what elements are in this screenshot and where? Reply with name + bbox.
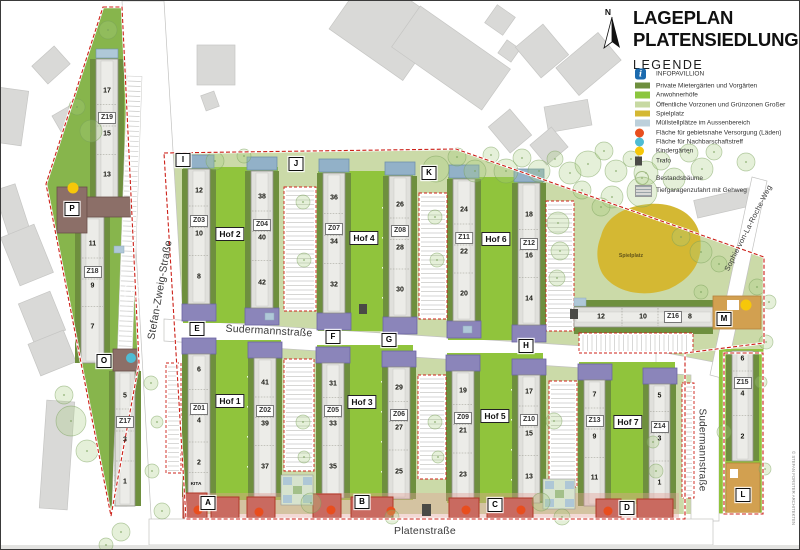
- legend-item-label: Anwohnerhöfe: [656, 92, 698, 99]
- waste-area-building: [319, 159, 349, 172]
- location-marker-P: P: [65, 202, 80, 216]
- context-building: [197, 45, 235, 85]
- site-plan-page: SpielplatzKITA© STEFAN FORSTER ARCHITEKT…: [0, 0, 800, 550]
- house-number-label: 12: [195, 188, 203, 195]
- page-title-line1: LAGEPLAN: [633, 7, 799, 29]
- house-number-label: 2: [741, 434, 745, 441]
- house-number-label: 30: [396, 287, 404, 294]
- legend-item: Öffentliche Vorzonen und Grünzonen Große…: [635, 101, 785, 108]
- building-label-Z05: Z05: [324, 405, 342, 417]
- head-building: [578, 364, 612, 380]
- head-building: [512, 359, 546, 375]
- house-number-label: 33: [329, 421, 337, 428]
- building-label-Z18: Z18: [83, 266, 101, 278]
- head-building: [248, 342, 282, 358]
- house-number-label: 10: [195, 231, 203, 238]
- location-marker-B: B: [355, 495, 370, 509]
- circle-swatch: [635, 147, 644, 156]
- location-marker-I: I: [176, 153, 191, 167]
- legend-item-label: Private Mietergärten und Vorgärten: [656, 82, 757, 89]
- waste-point: [463, 326, 472, 333]
- legend-swatch: [635, 147, 652, 156]
- head-building: [643, 368, 677, 384]
- head-building: [182, 304, 216, 321]
- legend-swatch: [635, 101, 652, 108]
- house-number-label: 23: [459, 472, 467, 479]
- location-marker-D: D: [620, 501, 635, 515]
- building-label-Z10: Z10: [520, 414, 538, 426]
- head-building: [316, 347, 350, 363]
- legend-item-label: Trafo: [656, 157, 671, 164]
- house-number-label: 7: [91, 324, 95, 331]
- building-label-Z09: Z09: [454, 412, 472, 424]
- location-marker-G: G: [382, 333, 397, 347]
- location-marker-A: A: [201, 496, 216, 510]
- location-marker-M: M: [717, 312, 732, 326]
- kindergarten-building: [87, 197, 131, 217]
- house-number-label: 24: [460, 207, 468, 214]
- parking-strip: [579, 333, 693, 353]
- legend-item: Kindergärten: [635, 147, 693, 156]
- house-number-label: 40: [258, 235, 266, 242]
- infopavillion-icon: i: [126, 286, 139, 299]
- waste-area-building: [247, 157, 277, 170]
- color-swatch: [635, 92, 650, 99]
- house-number-label: 3: [123, 437, 127, 444]
- house-number-label: 32: [330, 282, 338, 289]
- location-marker-J: J: [289, 157, 304, 171]
- courtyard-label-1: Hof 1: [215, 394, 244, 408]
- house-number-label: 8: [197, 274, 201, 281]
- street-label-platen: Platenstraße: [394, 525, 456, 537]
- trafo-swatch: [635, 156, 642, 165]
- courtyard-label-2: Hof 2: [215, 227, 244, 241]
- house-number-label: 10: [639, 314, 647, 321]
- kindergarten-circle: [68, 183, 79, 194]
- legend-item: Fläche für gebietsnahe Versorgung (Läden…: [635, 128, 781, 137]
- house-number-label: 15: [103, 131, 111, 138]
- location-marker-E: E: [190, 322, 205, 336]
- location-marker-H: H: [519, 339, 534, 353]
- house-number-label: 11: [591, 475, 598, 482]
- location-marker-L: L: [736, 488, 751, 502]
- retail-building: [637, 499, 673, 518]
- house-number-label: 42: [258, 280, 266, 287]
- circle-swatch: [635, 138, 644, 147]
- legend-item-label: Öffentliche Vorzonen und Grünzonen Große…: [656, 101, 785, 108]
- garage-ramp-icon: [635, 185, 652, 197]
- head-building: [182, 338, 216, 354]
- house-number-label: 18: [525, 212, 533, 219]
- color-swatch: [635, 82, 650, 89]
- building-label-Z19: Z19: [98, 112, 116, 124]
- house-number-label: 1: [658, 480, 662, 487]
- house-number-label: 2: [197, 460, 201, 467]
- head-building: [317, 313, 351, 330]
- courtyard-label-3: Hof 3: [347, 395, 376, 409]
- house-number-label: 19: [459, 388, 467, 395]
- waste-area-building: [385, 162, 415, 175]
- color-swatch: [635, 120, 650, 127]
- house-number-label: 26: [396, 202, 404, 209]
- trafo-station: [570, 309, 578, 319]
- legend-item-label: Bestandsbäume: [656, 175, 703, 182]
- legend-swatch: [635, 128, 652, 137]
- house-number-label: 34: [330, 239, 338, 246]
- house-number-label: 9: [91, 283, 95, 290]
- house-number-label: 6: [197, 367, 201, 374]
- credit-text: © STEFAN FORSTER ARCHITEKTEN: [791, 451, 796, 525]
- head-building: [382, 351, 416, 367]
- building-label-Z02: Z02: [256, 405, 274, 417]
- retail-marker-circle: [327, 506, 336, 515]
- legend-item: Trafo: [635, 156, 671, 165]
- legend-item: Tiefgaragenzufahrt mit Gehweg: [635, 185, 747, 197]
- building-label-Z17: Z17: [116, 416, 134, 428]
- head-building: [446, 355, 480, 371]
- legend-item: Spielplatz: [635, 110, 684, 117]
- waste-area-building: [96, 49, 118, 58]
- parking-strip: [549, 381, 577, 487]
- kindergarten-circle: [741, 300, 752, 311]
- legend-item-label: Kindergärten: [656, 148, 693, 155]
- building-label-Z12: Z12: [520, 238, 538, 250]
- trafo-station: [422, 504, 431, 516]
- house-number-label: 27: [395, 425, 403, 432]
- legend-swatch: [635, 138, 652, 147]
- legend-swatch: [635, 156, 652, 165]
- house-number-label: 37: [261, 464, 269, 471]
- house-number-label: 38: [258, 194, 266, 201]
- house-number-label: 4: [741, 391, 745, 398]
- playground-label: Spielplatz: [619, 253, 644, 259]
- house-number-label: 16: [525, 253, 533, 260]
- building-label-Z06: Z06: [390, 409, 408, 421]
- house-number-label: 36: [330, 195, 338, 202]
- color-swatch: [635, 110, 650, 117]
- legend-swatch: [635, 171, 652, 185]
- legend-swatch: [635, 92, 652, 99]
- house-number-label: 31: [329, 381, 337, 388]
- color-swatch: [635, 101, 650, 108]
- tree-icon: [635, 171, 649, 185]
- house-number-label: 13: [103, 172, 111, 179]
- legend-item-label: Müllstellplätze im Aussenbereich: [656, 120, 750, 127]
- page-title: LAGEPLAN PLATENSIEDLUNG: [633, 7, 799, 51]
- legend-swatch: i: [635, 69, 652, 80]
- house-number-label: 3: [658, 436, 662, 443]
- building-label-Z16: Z16: [664, 311, 682, 323]
- house-number-label: 20: [460, 291, 468, 298]
- courtyard-label-7: Hof 7: [613, 415, 642, 429]
- building-label-Z04: Z04: [253, 219, 271, 231]
- location-marker-O: O: [97, 354, 112, 368]
- legend-item: Bestandsbäume: [635, 171, 703, 185]
- waste-point: [265, 313, 274, 320]
- trafo-station: [359, 304, 367, 314]
- legend-item: Private Mietergärten und Vorgärten: [635, 82, 757, 89]
- circle-swatch: [635, 128, 644, 137]
- courtyard-label-4: Hof 4: [349, 231, 378, 245]
- retail-marker-circle: [255, 508, 264, 517]
- retail-marker-circle: [517, 506, 526, 515]
- info-icon: i: [635, 69, 646, 80]
- building-label-Z01: Z01: [190, 403, 208, 415]
- legend-item-label: Spielplatz: [656, 110, 684, 117]
- kita-label: KITA: [191, 481, 202, 487]
- retail-marker-circle: [462, 506, 471, 515]
- tree-icon: [99, 538, 113, 550]
- building-label-Z11: Z11: [455, 232, 473, 244]
- legend-item-label: Tiefgaragenzufahrt mit Gehweg: [656, 187, 747, 194]
- house-number-label: 25: [395, 469, 403, 476]
- house-number-label: 6: [741, 356, 745, 363]
- house-number-label: 1: [123, 479, 127, 486]
- house-number-label: 39: [261, 421, 269, 428]
- building-label-Z14: Z14: [650, 421, 668, 433]
- house-number-label: 17: [525, 389, 533, 396]
- legend-swatch: [635, 185, 652, 197]
- building-label-Z03: Z03: [190, 215, 208, 227]
- retail-marker-circle: [604, 507, 613, 516]
- house-number-label: 4: [197, 418, 201, 425]
- legend-item: i INFOPAVILLION: [635, 69, 704, 80]
- title-block: LAGEPLAN PLATENSIEDLUNG LEGENDE: [633, 7, 799, 72]
- page-title-line2: PLATENSIEDLUNG: [633, 29, 799, 51]
- legend-swatch: [635, 120, 652, 127]
- legend-swatch: [635, 82, 652, 89]
- legend-swatch: [635, 110, 652, 117]
- legend-item: Fläche für Nachbarschaftstreff: [635, 138, 743, 147]
- legend-item: Anwohnerhöfe: [635, 92, 698, 99]
- house-number-label: 12: [597, 314, 605, 321]
- building-label-Z08: Z08: [391, 225, 409, 237]
- location-marker-K: K: [422, 166, 437, 180]
- pavement-strip: [1, 545, 800, 550]
- house-number-label: 28: [396, 245, 404, 252]
- house-number-label: 5: [123, 393, 127, 400]
- house-number-label: 29: [395, 385, 403, 392]
- infopavillion-glyph: i: [130, 287, 133, 297]
- building-label-Z15: Z15: [733, 377, 751, 389]
- house-number-label: 13: [525, 474, 533, 481]
- legend-item: Müllstellplätze im Aussenbereich: [635, 120, 750, 127]
- legend-item-label: INFOPAVILLION: [656, 71, 704, 78]
- courtyard-label-6: Hof 6: [481, 232, 510, 246]
- building-label-Z13: Z13: [585, 415, 603, 427]
- street-label-sudermann-vertical: Sudermannstraße: [697, 408, 708, 491]
- house-number-label: 35: [329, 464, 337, 471]
- house-number-label: 15: [525, 431, 533, 438]
- house-number-label: 22: [460, 249, 468, 256]
- location-marker-F: F: [326, 330, 341, 344]
- house-number-label: 14: [525, 296, 533, 303]
- legend-item-label: Fläche für gebietsnahe Versorgung (Läden…: [656, 129, 781, 136]
- north-label: N: [605, 7, 611, 17]
- house-number-label: 17: [103, 88, 111, 95]
- waste-point: [114, 246, 124, 253]
- building-label-Z07: Z07: [325, 223, 343, 235]
- house-number-label: 9: [593, 434, 597, 441]
- courtyard-label-5: Hof 5: [480, 409, 509, 423]
- legend-item-label: Fläche für Nachbarschaftstreff: [656, 139, 743, 146]
- head-building: [383, 317, 417, 334]
- house-number-label: 5: [658, 393, 662, 400]
- house-number-label: 11: [89, 241, 96, 248]
- house-number-label: 41: [261, 380, 269, 387]
- waste-point: [574, 298, 586, 306]
- house-number-label: 7: [593, 392, 597, 399]
- house-number-label: 8: [688, 314, 692, 321]
- location-marker-C: C: [488, 498, 503, 512]
- neighbourhood-circle: [126, 353, 136, 363]
- house-number-label: 21: [459, 428, 467, 435]
